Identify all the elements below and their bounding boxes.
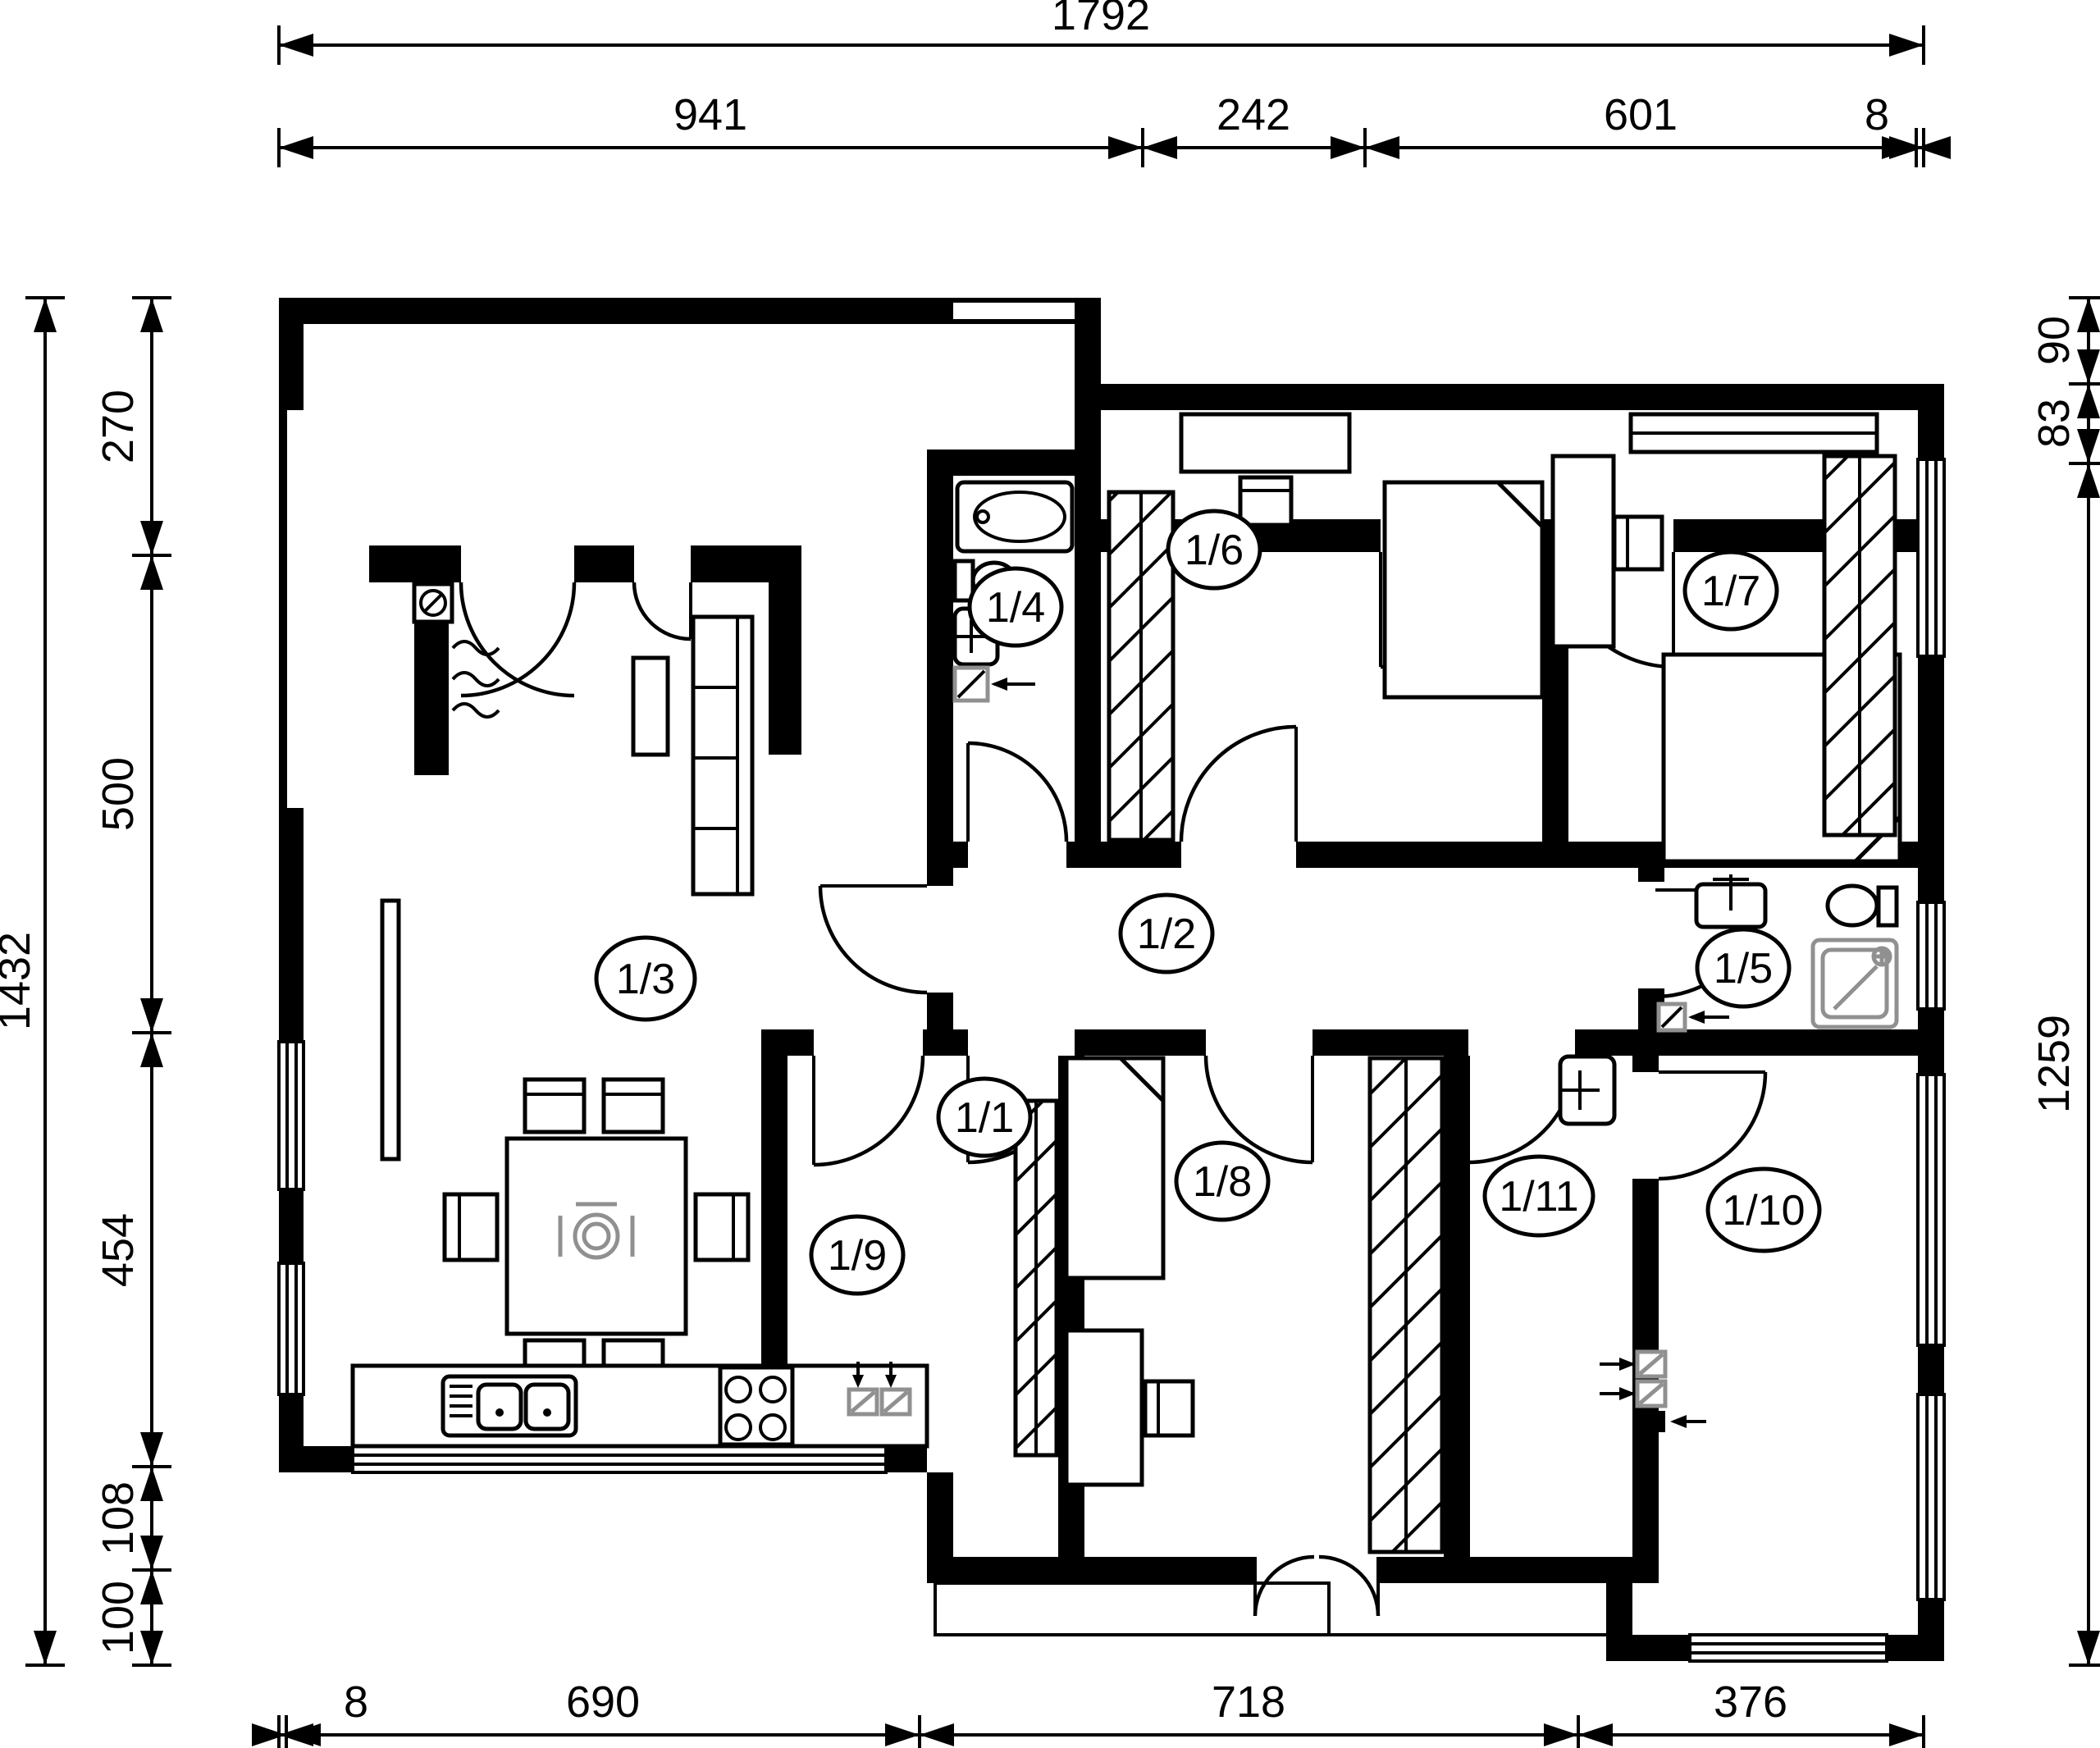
- wardrobe-icon: [1016, 1101, 1057, 1455]
- dimension-label: 100: [94, 1581, 143, 1654]
- dimension-label: 500: [94, 757, 143, 831]
- room-number: 1/7: [1701, 568, 1760, 615]
- dimension-label: 1792: [1052, 0, 1150, 39]
- dimension-arrow: [1578, 1723, 1613, 1746]
- wardrobe-icon: [1109, 492, 1173, 840]
- dimension-label: 83: [2029, 399, 2079, 448]
- dimension-arrow: [279, 136, 313, 159]
- dimension-label: 1259: [2029, 1015, 2079, 1113]
- dimension-arrow: [140, 1570, 163, 1604]
- dimension-label: 108: [94, 1481, 143, 1555]
- dimension-arrow: [2077, 384, 2100, 418]
- room-number: 1/4: [986, 584, 1045, 632]
- dimension-arrow: [140, 298, 163, 332]
- dimension-arrow: [1331, 136, 1365, 159]
- bed-icon: [1385, 482, 1542, 697]
- window-icon: [1918, 459, 1944, 656]
- dimension-arrow: [140, 555, 163, 590]
- dimension-chain: 270500454108100: [94, 298, 171, 1665]
- room-label-1-11: 1/11: [1485, 1157, 1593, 1235]
- dimension-arrow: [140, 521, 163, 555]
- dimension-label: 376: [1714, 1677, 1787, 1727]
- shelf-icon: [1631, 414, 1877, 452]
- floor-plan-page: 1/1 1/2 1/3 1/4 1/5 1/6 1/7 1/8: [0, 0, 2100, 1748]
- chair-icon: [525, 1079, 584, 1132]
- stove-icon: [720, 1367, 792, 1444]
- dimension-arrow: [140, 998, 163, 1033]
- door-icon: [634, 582, 691, 639]
- dimension-label: 242: [1217, 90, 1290, 139]
- dimension-label: 8: [1865, 90, 1889, 139]
- room-label-1-2: 1/2: [1121, 895, 1212, 972]
- door-icon: [968, 743, 1066, 842]
- dimension-arrow: [140, 1631, 163, 1665]
- door-icon: [820, 886, 927, 993]
- dimension-label: 1432: [0, 932, 39, 1030]
- dimension-arrow: [140, 1033, 163, 1067]
- dimension-arrow: [2077, 429, 2100, 463]
- dimension-chain: 1792: [279, 0, 1924, 65]
- room-label-1-7: 1/7: [1685, 552, 1777, 629]
- dimension-arrow: [140, 1432, 163, 1467]
- wardrobe-icon: [1824, 456, 1895, 835]
- bedroom-18-furniture: [1066, 1058, 1442, 1552]
- chair-icon: [604, 1079, 663, 1132]
- desk-icon: [1181, 414, 1349, 472]
- double-swing-door-icon: [461, 582, 574, 696]
- dimension-label: 690: [566, 1677, 640, 1727]
- chair-icon: [1614, 517, 1662, 569]
- window-icon: [1918, 1075, 1944, 1345]
- room-number: 1/1: [955, 1094, 1014, 1142]
- shower-icon: [1813, 940, 1897, 1027]
- dimension-arrow: [140, 1536, 163, 1570]
- chair-icon: [445, 1194, 497, 1260]
- dimension-arrow: [2077, 298, 2100, 332]
- toilet-icon: [1828, 886, 1897, 925]
- dimension-arrow: [1889, 34, 1924, 57]
- dimension-arrow: [252, 1723, 286, 1746]
- room-number: 1/10: [1722, 1187, 1805, 1235]
- room-label-1-9: 1/9: [811, 1216, 903, 1294]
- bed-icon: [1066, 1058, 1163, 1278]
- dimension-label: 718: [1212, 1677, 1285, 1727]
- porch-outline: [935, 1583, 1606, 1635]
- window-icon: [1918, 902, 1944, 1009]
- dimension-label: 90: [2029, 316, 2079, 365]
- sink-icon: [1560, 1057, 1614, 1124]
- door-icon: [814, 1056, 923, 1165]
- dimension-arrow: [1889, 1723, 1924, 1746]
- dimension-arrow: [1143, 136, 1177, 159]
- dimension-chain: 9412426018: [279, 90, 1951, 167]
- door-icon: [1659, 1072, 1765, 1179]
- sideboard-icon: [633, 658, 668, 755]
- room-label-1-10: 1/10: [1708, 1169, 1819, 1251]
- window-icon: [1918, 1394, 1944, 1600]
- dimension-arrow: [920, 1723, 954, 1746]
- floor-vent-icon: [1659, 1004, 1729, 1030]
- bedroom-11-furniture: [1016, 1101, 1057, 1455]
- dimension-arrow: [279, 34, 313, 57]
- room-number: 1/3: [616, 956, 675, 1003]
- window-icon: [1690, 1635, 1887, 1661]
- dimension-arrow: [2077, 1631, 2100, 1665]
- floor-vent-icon: [1600, 1352, 1706, 1432]
- dimension-label: 270: [94, 390, 143, 463]
- dimension-arrow: [885, 1723, 920, 1746]
- sofa-icon: [693, 617, 752, 894]
- kitchen-counter-icon: [353, 1362, 927, 1446]
- dining-table-icon: [507, 1139, 686, 1334]
- floor-plan-drawing: 1/1 1/2 1/3 1/4 1/5 1/6 1/7 1/8: [0, 0, 2100, 1748]
- room-label-1-8: 1/8: [1176, 1143, 1268, 1220]
- sink-icon: [1696, 874, 1765, 927]
- dimension-arrow: [34, 1631, 57, 1665]
- room-number: 1/11: [1499, 1173, 1578, 1221]
- desk-icon: [1553, 456, 1614, 646]
- dimension-arrow: [1889, 136, 1924, 159]
- room-number: 1/6: [1185, 527, 1244, 574]
- chair-icon: [1240, 477, 1291, 525]
- dimension-arrow: [1544, 1723, 1578, 1746]
- room-number: 1/8: [1193, 1158, 1252, 1206]
- dimension-chain: 8690718376: [252, 1677, 1924, 1748]
- dimension-arrow: [2077, 349, 2100, 384]
- floor-vent-icon: [955, 668, 1035, 701]
- bedroom-16-furniture: [1109, 414, 1542, 840]
- window-icon: [353, 1446, 886, 1472]
- window-icon: [279, 1263, 304, 1394]
- chair-icon: [696, 1194, 748, 1260]
- dimension-arrow: [1365, 136, 1399, 159]
- dimension-chain: 90831259: [2029, 298, 2100, 1665]
- room-number: 1/5: [1714, 945, 1773, 993]
- dimension-arrow: [1108, 136, 1143, 159]
- desk-icon: [1066, 1330, 1142, 1485]
- dimension-label: 941: [673, 90, 747, 139]
- dimension-arrow: [2077, 463, 2100, 498]
- exterior-double-door-icon: [1255, 1557, 1378, 1616]
- dimension-label: 8: [344, 1677, 368, 1727]
- dimension-label: 601: [1604, 90, 1678, 139]
- cabinet-icon: [382, 901, 399, 1159]
- dimension-label: 454: [94, 1213, 143, 1287]
- room-number: 1/2: [1137, 911, 1196, 958]
- room-label-1-6: 1/6: [1168, 511, 1260, 588]
- room-label-1-1: 1/1: [938, 1079, 1030, 1156]
- bathtub-icon: [957, 482, 1072, 551]
- kitchen-sink-icon: [443, 1376, 576, 1435]
- chair-icon: [1145, 1381, 1193, 1435]
- dimension-chain: 1432: [0, 298, 65, 1665]
- dimension-arrow: [140, 1467, 163, 1501]
- door-icon: [1181, 727, 1296, 842]
- room-label-1-3: 1/3: [596, 938, 695, 1020]
- room-label-1-4: 1/4: [970, 568, 1061, 646]
- dimension-arrow: [34, 298, 57, 332]
- window-icon: [279, 1042, 304, 1189]
- dimension-lines: 1792941242601814322705004541081009083125…: [0, 0, 2100, 1748]
- room-number: 1/9: [828, 1232, 887, 1280]
- wardrobe-icon: [1370, 1058, 1442, 1552]
- room-label-1-5: 1/5: [1697, 929, 1789, 1006]
- bedroom-17-furniture: [1553, 414, 1900, 861]
